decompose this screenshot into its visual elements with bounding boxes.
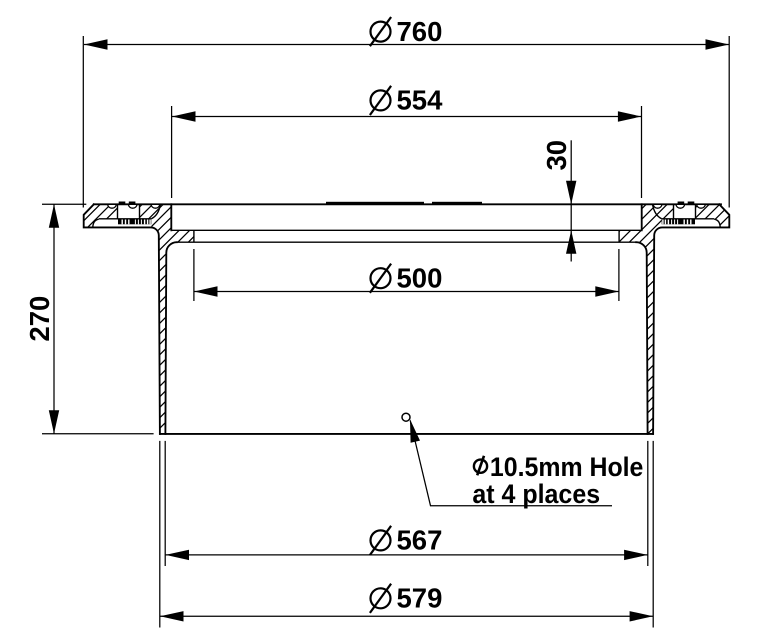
- svg-text:760: 760: [397, 16, 443, 47]
- svg-text:270: 270: [24, 296, 55, 342]
- svg-text:567: 567: [397, 525, 443, 556]
- svg-text:554: 554: [397, 85, 444, 116]
- svg-text:at 4 places: at 4 places: [472, 478, 600, 509]
- svg-text:30: 30: [541, 140, 572, 171]
- svg-text:579: 579: [397, 583, 443, 614]
- svg-text:500: 500: [397, 262, 443, 293]
